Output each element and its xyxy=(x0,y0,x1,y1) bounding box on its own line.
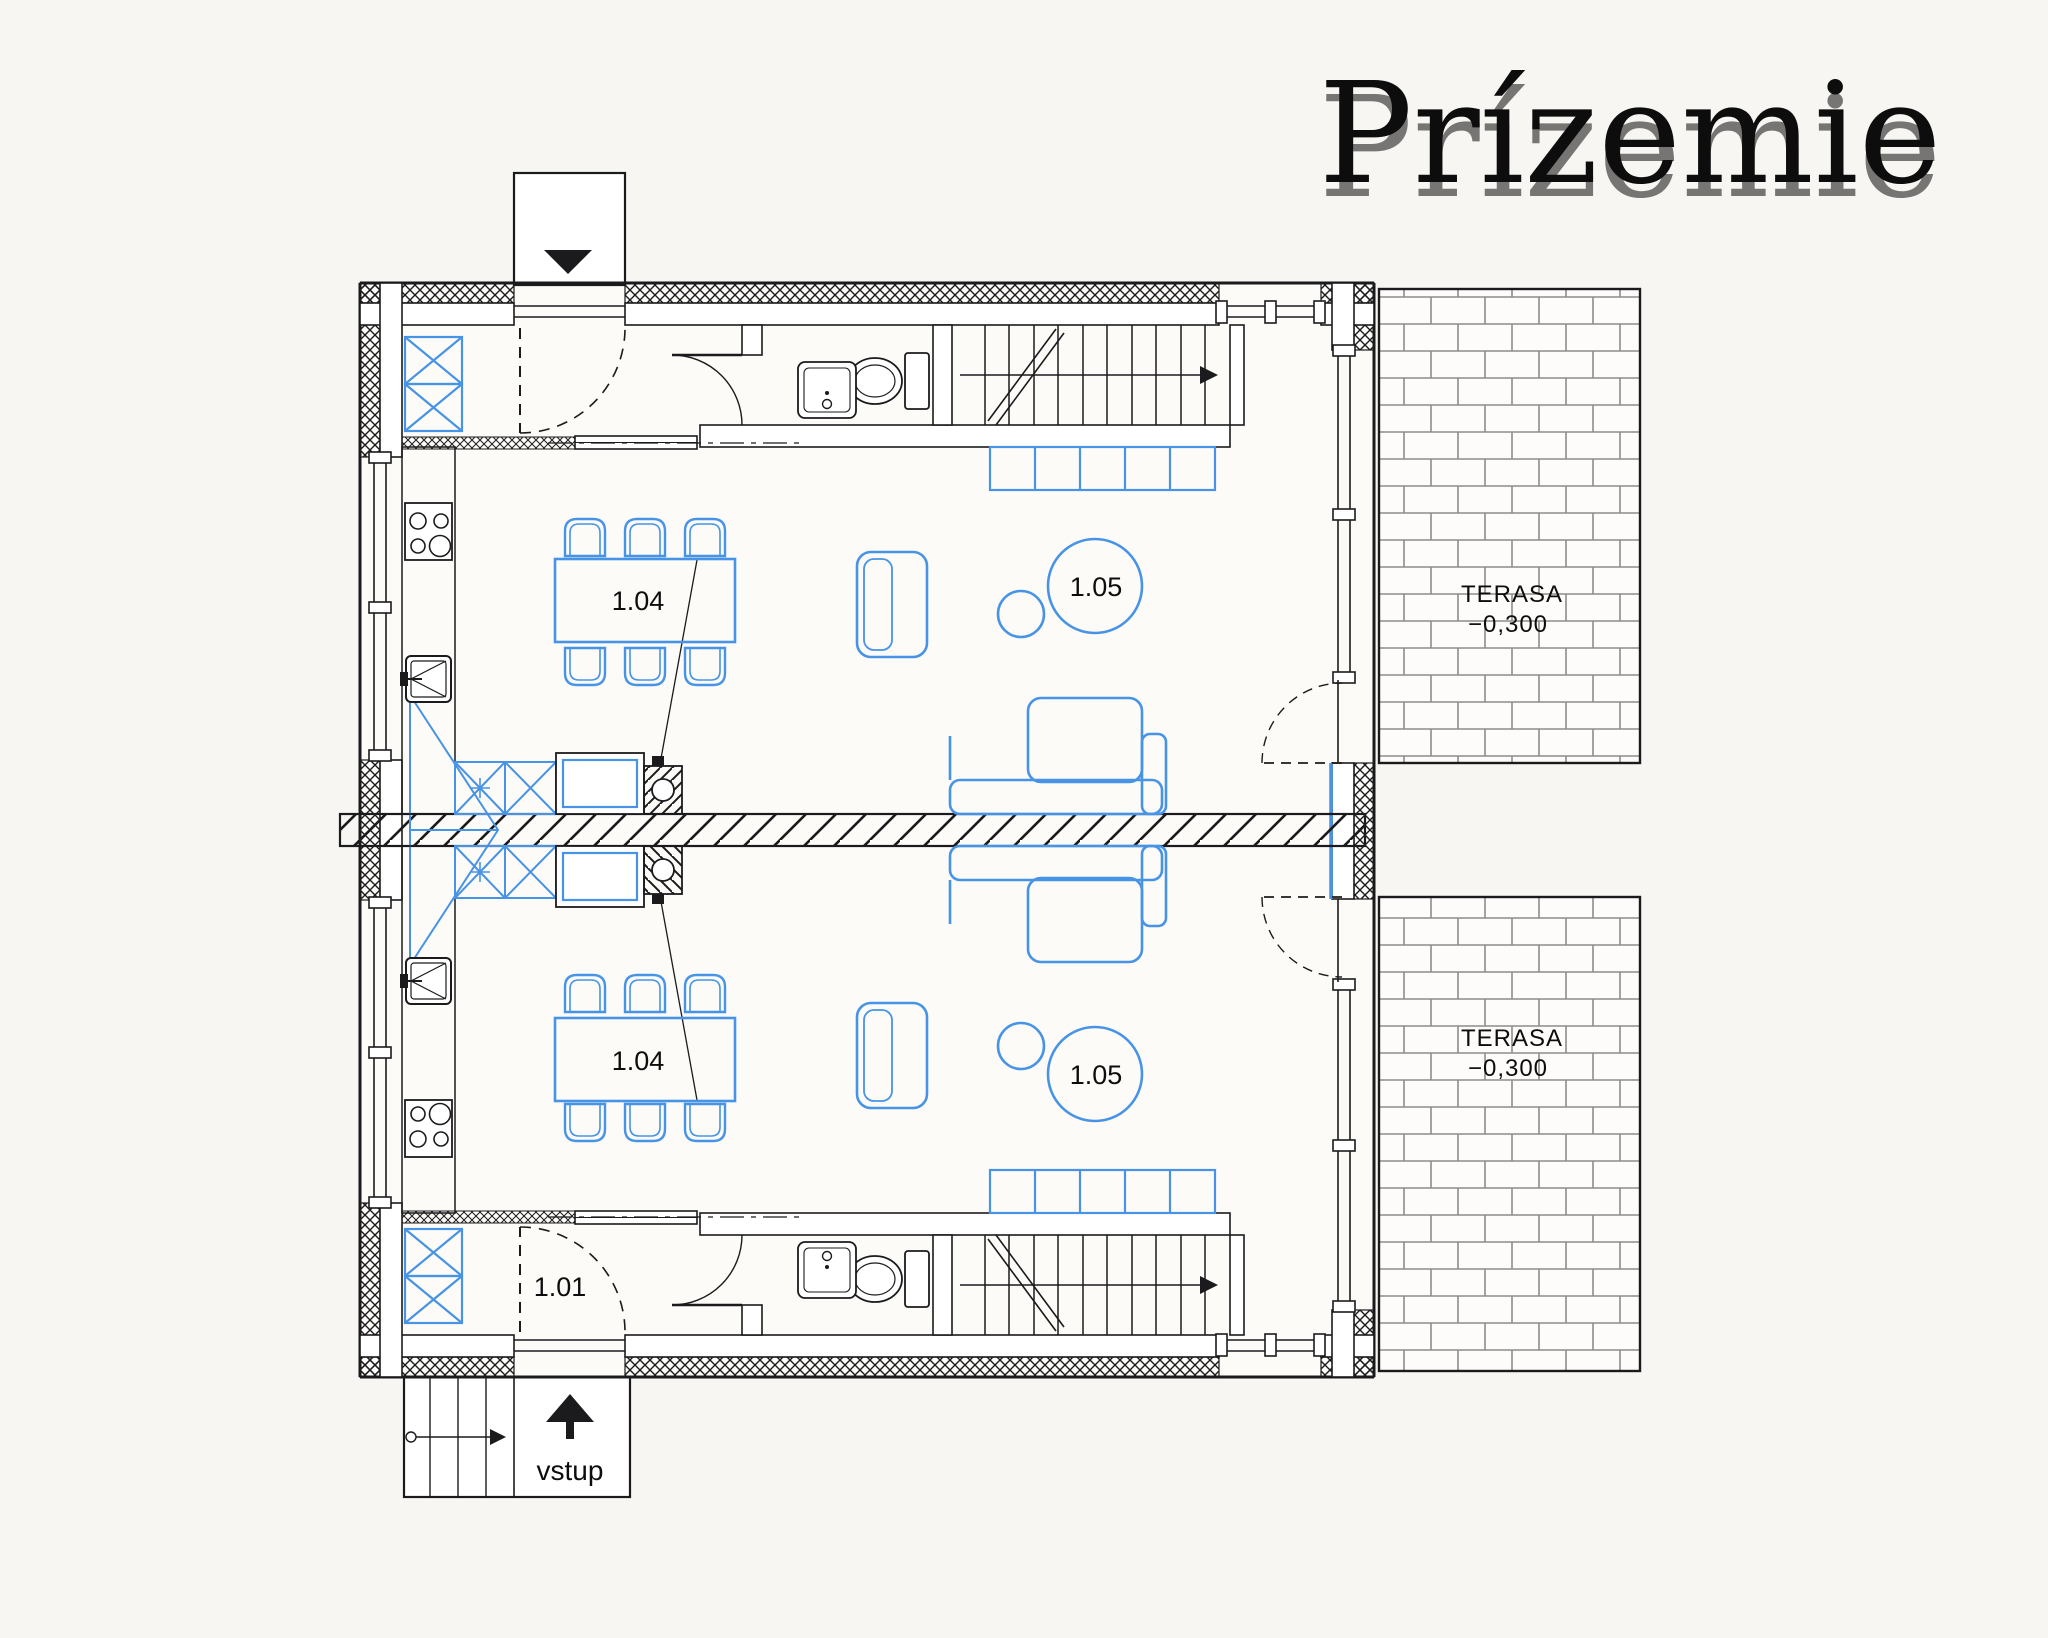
floor-plan-svg: Prízemie Prízemie vstup xyxy=(0,0,2048,1638)
room-label-dining-a: 1.04 xyxy=(612,586,665,616)
terrace-bottom xyxy=(1379,897,1640,1371)
terrace-top-name: TERASA xyxy=(1461,581,1563,608)
terrace-bottom-level: −0,300 xyxy=(1468,1055,1548,1082)
room-label-living-a: 1.05 xyxy=(1070,572,1123,602)
terrace-top xyxy=(1379,289,1640,763)
room-label-dining-b: 1.04 xyxy=(612,1046,665,1076)
terrace-bottom-name: TERASA xyxy=(1461,1025,1563,1052)
terrace-top-level: −0,300 xyxy=(1468,611,1548,638)
entrance-label: vstup xyxy=(537,1455,604,1486)
room-label-hall-b: 1.01 xyxy=(534,1272,587,1302)
floor-plan-page: Prízemie Prízemie vstup xyxy=(0,0,2048,1638)
room-label-living-b: 1.05 xyxy=(1070,1060,1123,1090)
entrance-porch: vstup xyxy=(404,1377,630,1497)
page-title: Prízemie xyxy=(1319,53,1942,216)
roof-vent-shaft xyxy=(514,173,625,285)
